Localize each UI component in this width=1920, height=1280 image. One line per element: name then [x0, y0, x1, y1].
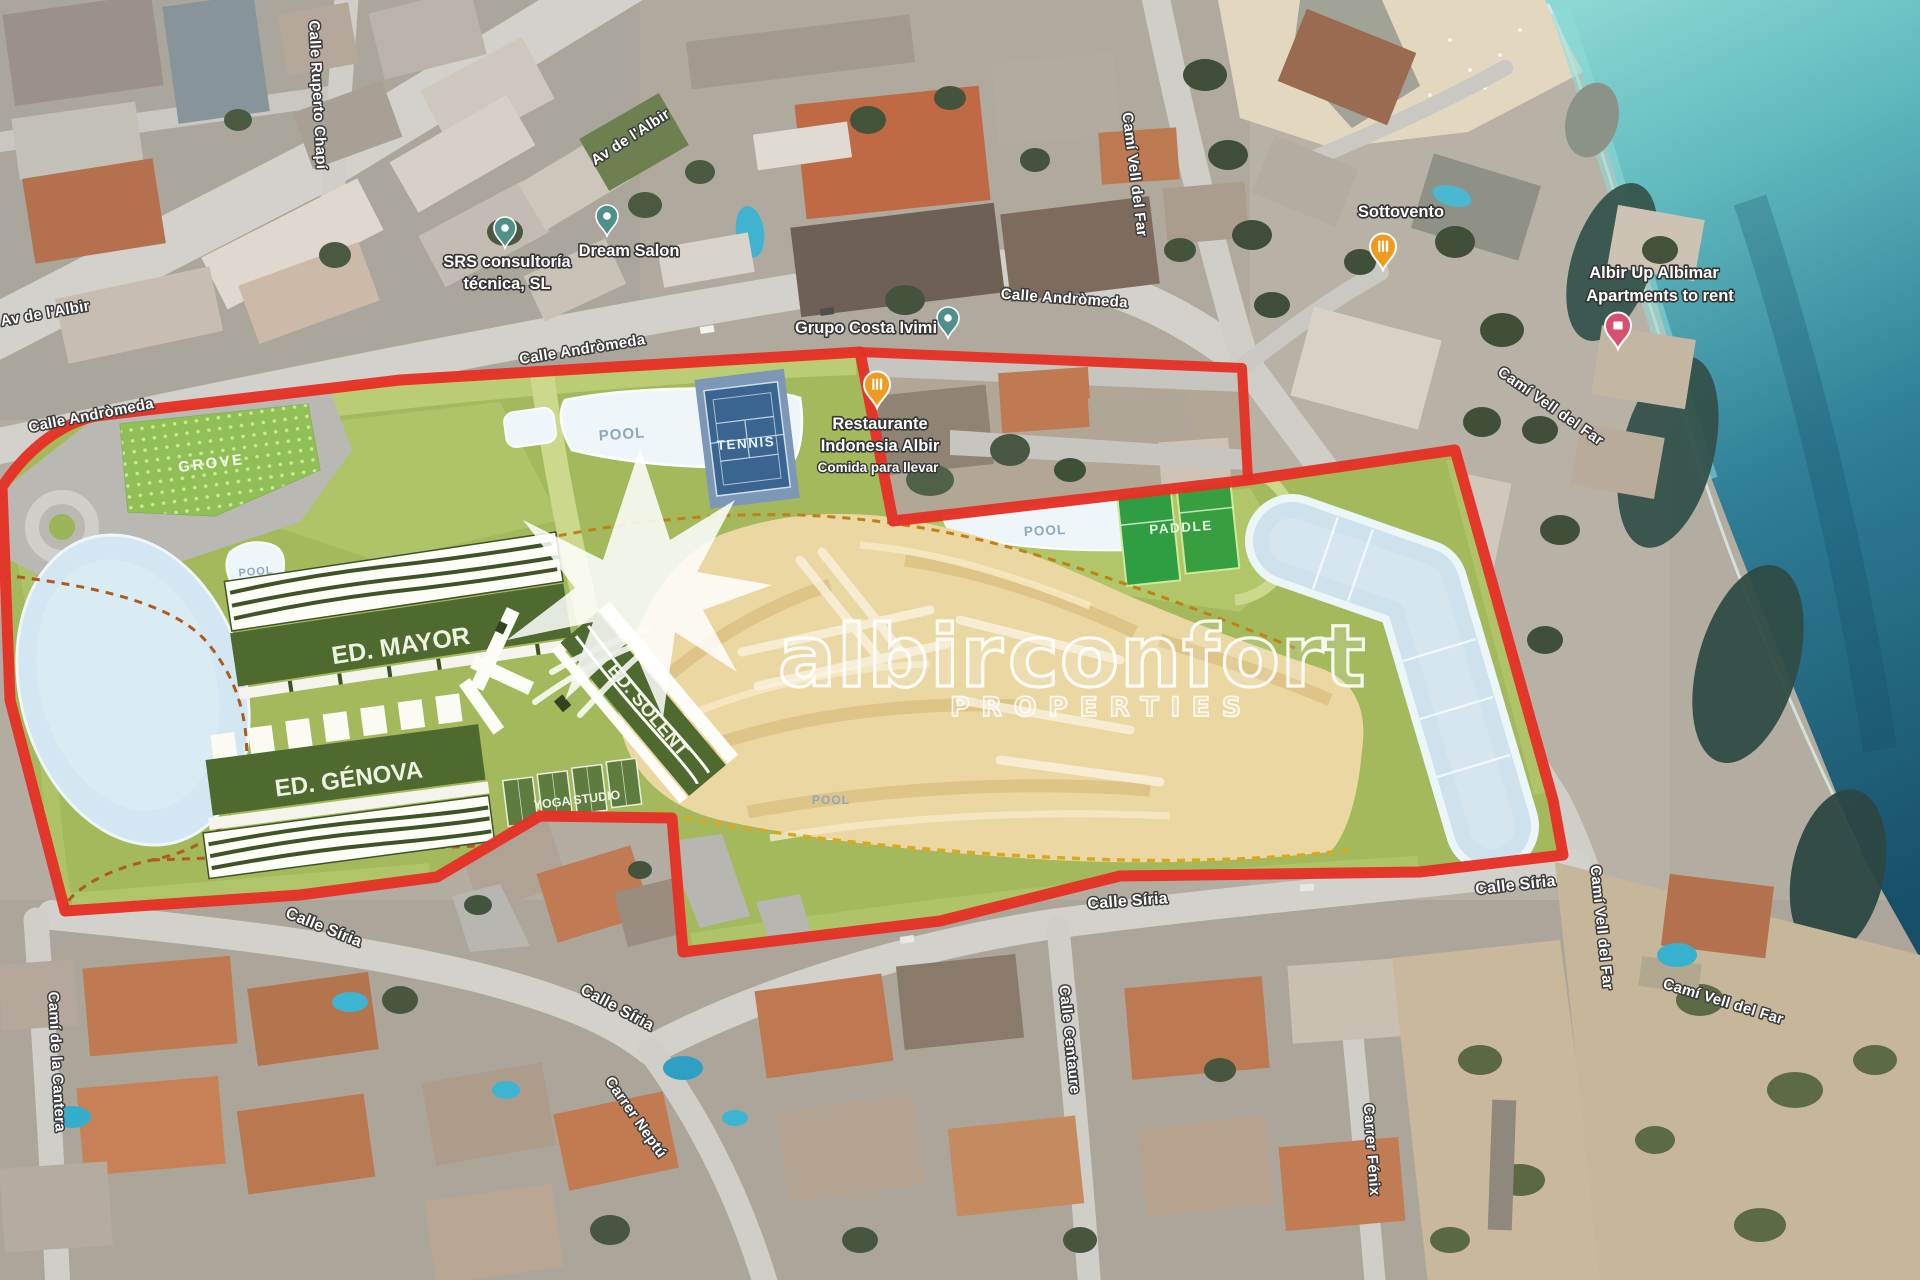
decorative-shape — [1734, 1208, 1786, 1242]
decorative-shape — [1208, 140, 1248, 170]
decorative-shape — [1642, 236, 1678, 264]
decorative-shape — [1124, 976, 1269, 1080]
decorative-shape — [998, 367, 1092, 433]
decorative-shape — [948, 1116, 1084, 1217]
poi-restaurante-line3[interactable]: Comida para llevar — [818, 460, 940, 475]
satellite-masterplan-svg[interactable]: GROVE POOL POOL POOL POOL TENNIS PADDLE … — [0, 0, 1920, 1280]
poi-albimar-line1[interactable]: Albir Up Albimar — [1589, 264, 1719, 282]
decorative-shape — [1428, 93, 1432, 97]
decorative-shape — [1020, 148, 1050, 172]
decorative-shape — [492, 1081, 520, 1099]
decorative-shape — [82, 956, 237, 1057]
decorative-shape — [1204, 1058, 1236, 1082]
poi-srs-line1[interactable]: SRS consultoría — [443, 253, 571, 271]
decorative-shape — [685, 160, 715, 184]
decorative-shape — [1463, 407, 1501, 437]
decorative-shape — [1300, 884, 1314, 892]
decorative-shape — [1488, 1100, 1517, 1231]
poi-grupo-costa[interactable]: Grupo Costa Ivimi — [795, 319, 937, 337]
label-pool-central: POOL — [1024, 522, 1067, 539]
decorative-shape — [590, 1215, 630, 1245]
decorative-shape — [1287, 958, 1404, 1044]
decorative-shape — [1254, 292, 1290, 318]
decorative-shape — [435, 693, 462, 724]
decorative-shape — [464, 895, 492, 915]
decorative-shape — [885, 285, 925, 315]
decorative-shape — [1448, 38, 1452, 42]
decorative-shape — [332, 992, 368, 1012]
decorative-shape — [319, 242, 351, 268]
poi-sottovento[interactable]: Sottovento — [1358, 203, 1444, 221]
decorative-shape — [323, 711, 350, 742]
decorative-shape — [49, 514, 75, 540]
decorative-shape — [663, 1056, 703, 1080]
poi-albimar-line2[interactable]: Apartments to rent — [1586, 287, 1734, 305]
decorative-shape — [1435, 226, 1475, 258]
decorative-shape — [1498, 53, 1502, 57]
label-pool-south: POOL — [812, 793, 850, 807]
poi-srs-line2[interactable]: técnica, SL — [463, 275, 550, 293]
decorative-shape — [722, 1110, 748, 1126]
decorative-shape — [628, 861, 652, 879]
decorative-shape — [992, 53, 1121, 145]
decorative-shape — [382, 986, 418, 1014]
decorative-shape — [1853, 1045, 1897, 1075]
decorative-shape — [237, 1094, 375, 1195]
decorative-shape — [842, 1227, 878, 1253]
decorative-shape — [248, 725, 275, 756]
label-pool-north: POOL — [598, 424, 646, 444]
decorative-shape — [776, 1093, 925, 1203]
decorative-shape — [1540, 515, 1580, 545]
decorative-shape — [1183, 59, 1227, 91]
decorative-shape — [896, 954, 1024, 1050]
decorative-shape — [398, 699, 425, 730]
poi-restaurante-line1[interactable]: Restaurante — [832, 415, 927, 433]
brand-tagline: PROPERTIES — [950, 692, 1253, 723]
decorative-shape — [360, 705, 387, 736]
decorative-shape — [850, 106, 886, 134]
decorative-shape — [0, 1161, 113, 1252]
pool-north-small — [503, 407, 557, 449]
decorative-shape — [1279, 1137, 1406, 1231]
decorative-shape — [1232, 220, 1272, 250]
decorative-shape — [1657, 943, 1697, 967]
decorative-shape — [1164, 238, 1196, 262]
map-canvas[interactable]: GROVE POOL POOL POOL POOL TENNIS PADDLE … — [0, 0, 1920, 1280]
decorative-shape — [990, 434, 1030, 466]
decorative-shape — [1635, 1126, 1675, 1154]
poi-dream-salon[interactable]: Dream Salon — [579, 242, 680, 260]
decorative-shape — [1480, 313, 1524, 347]
decorative-shape — [1522, 416, 1558, 444]
decorative-shape — [1767, 1072, 1823, 1108]
decorative-shape — [934, 86, 966, 110]
decorative-shape — [1430, 1227, 1470, 1253]
decorative-shape — [1063, 1227, 1097, 1253]
decorative-shape — [0, 959, 78, 1030]
decorative-shape — [628, 192, 662, 218]
decorative-shape — [1527, 626, 1563, 654]
decorative-shape — [1518, 28, 1522, 32]
decorative-shape — [1054, 458, 1086, 482]
decorative-shape — [285, 718, 312, 749]
decorative-shape — [1468, 68, 1472, 72]
decorative-shape — [162, 0, 270, 124]
poi-restaurante-line2[interactable]: Indonesia Albir — [821, 437, 940, 455]
decorative-shape — [76, 1076, 225, 1176]
decorative-shape — [754, 974, 893, 1079]
decorative-shape — [1591, 325, 1696, 409]
decorative-shape — [1138, 1116, 1274, 1217]
decorative-shape — [1458, 1045, 1502, 1075]
decorative-shape — [224, 109, 252, 131]
